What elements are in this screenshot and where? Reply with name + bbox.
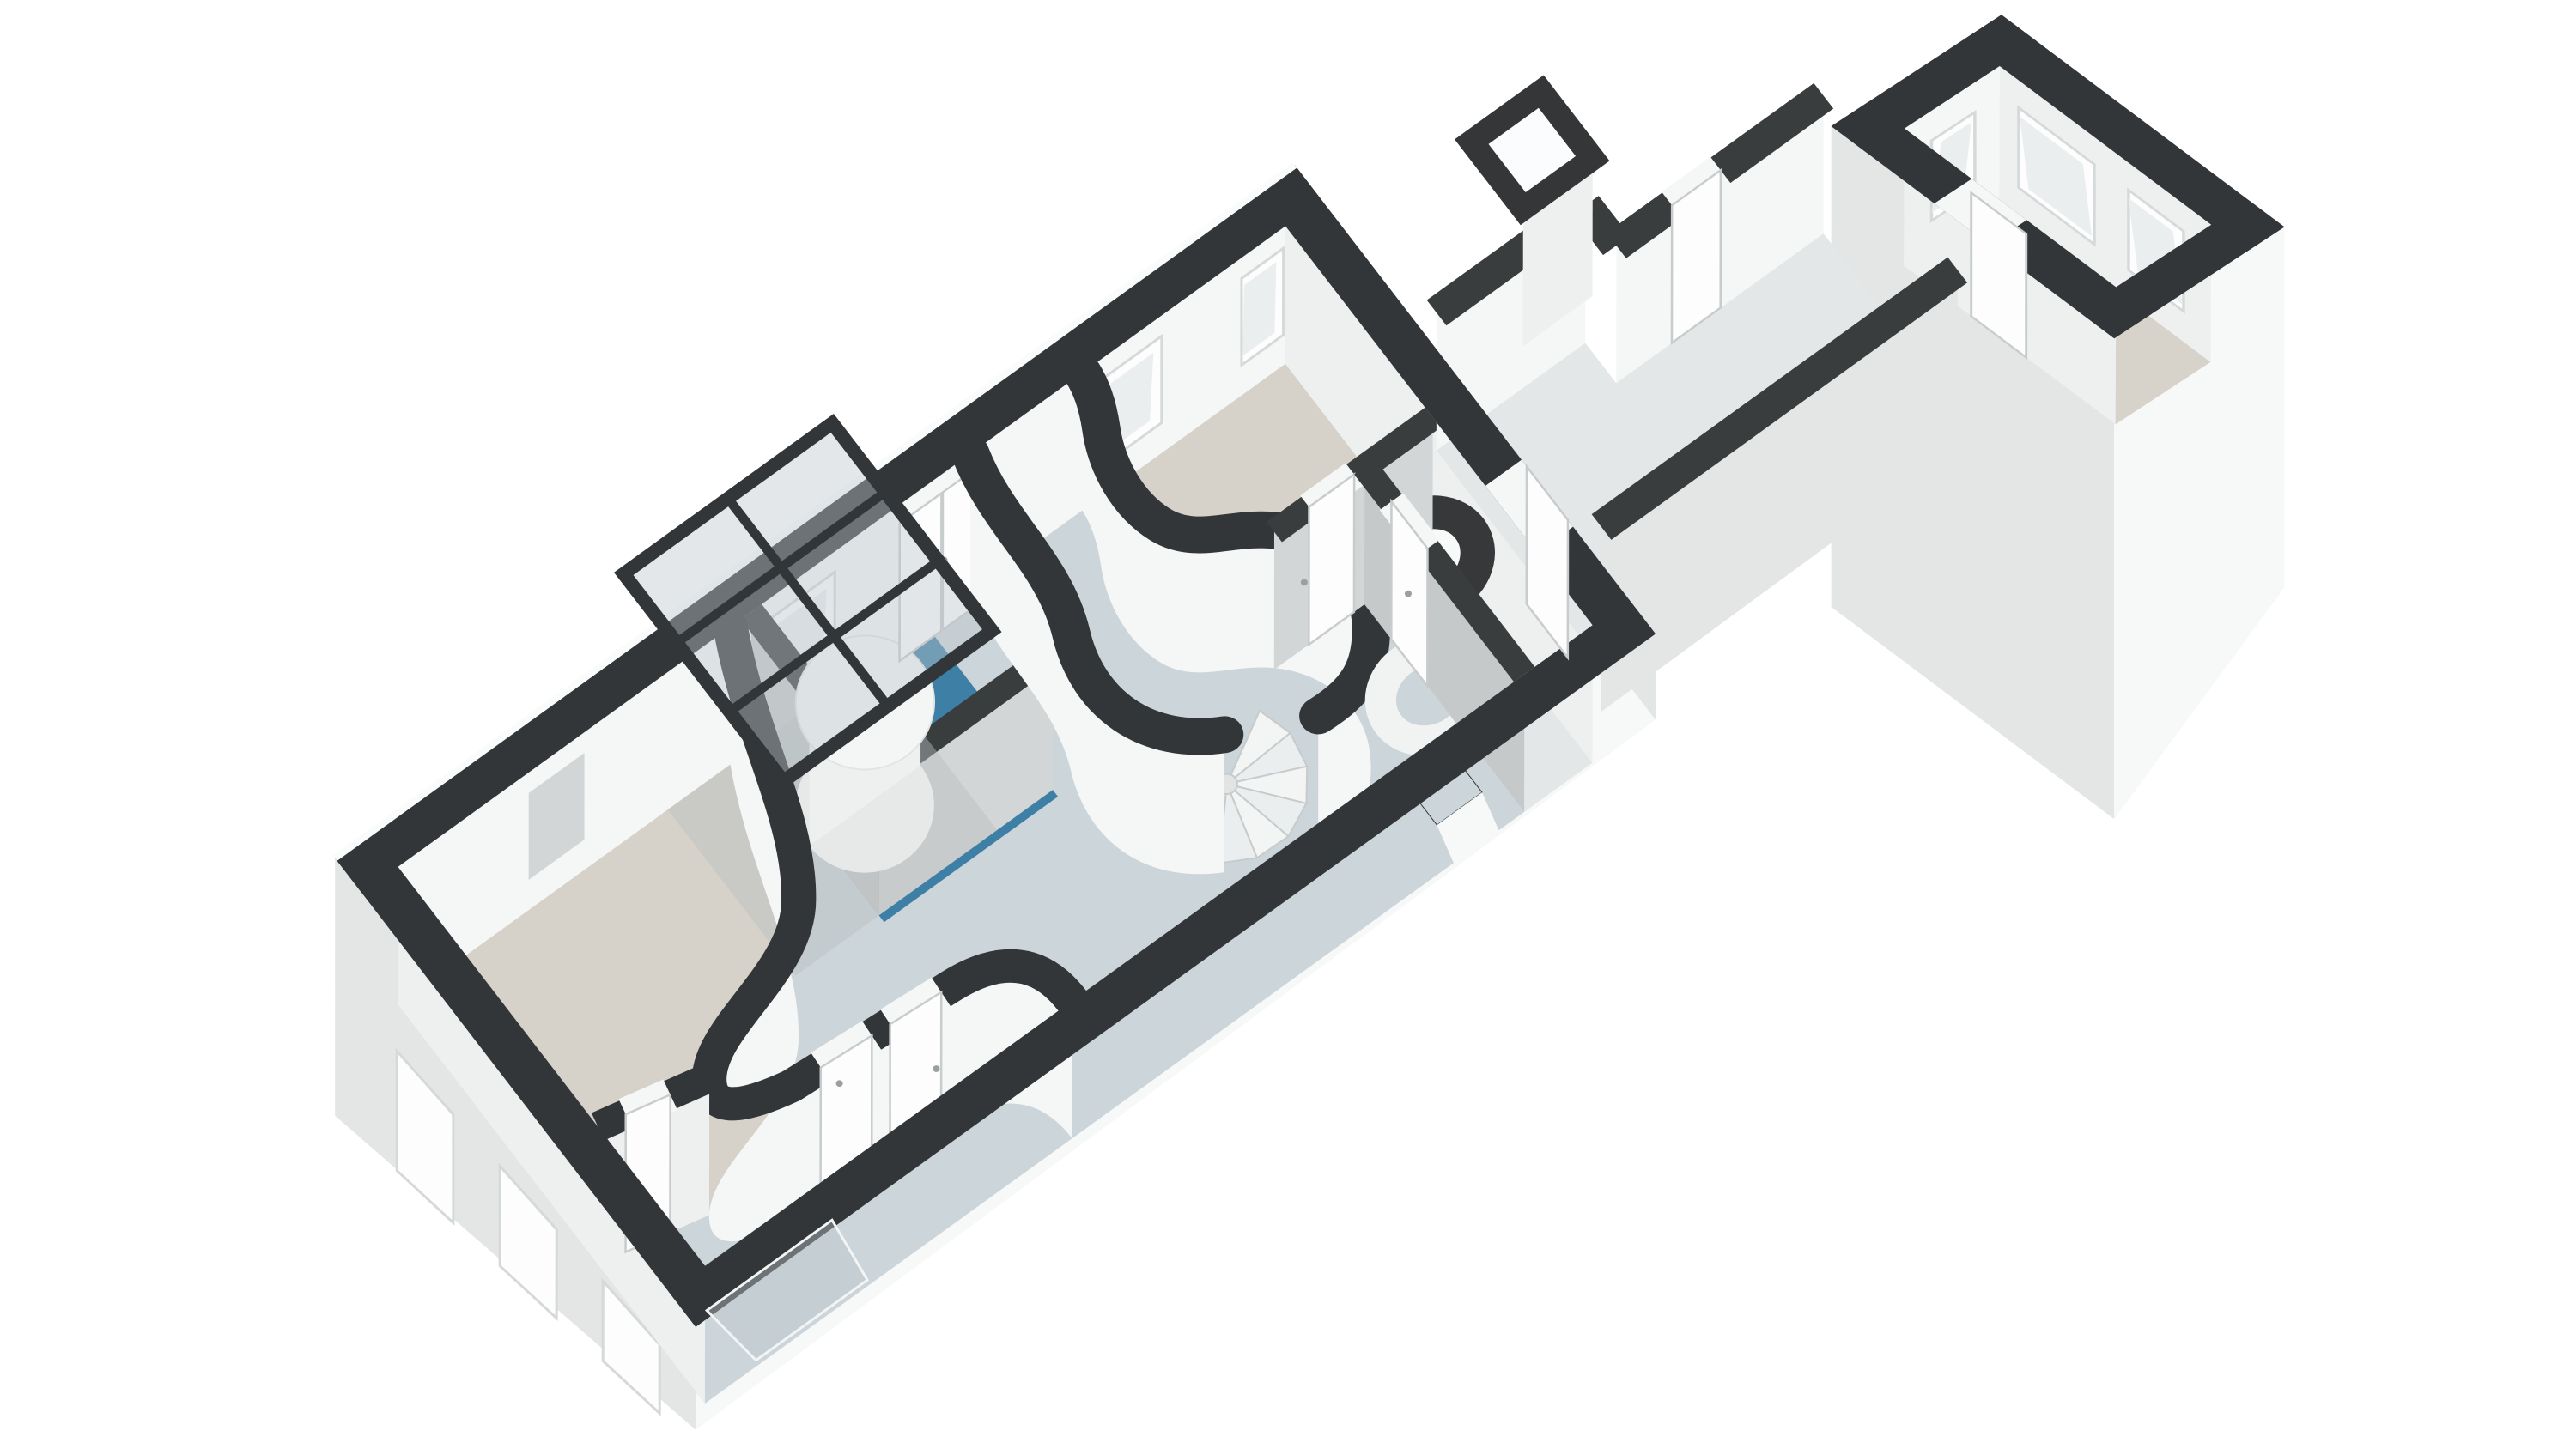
floorplan-3d-render <box>0 0 2576 1449</box>
main-block <box>170 0 2081 1449</box>
